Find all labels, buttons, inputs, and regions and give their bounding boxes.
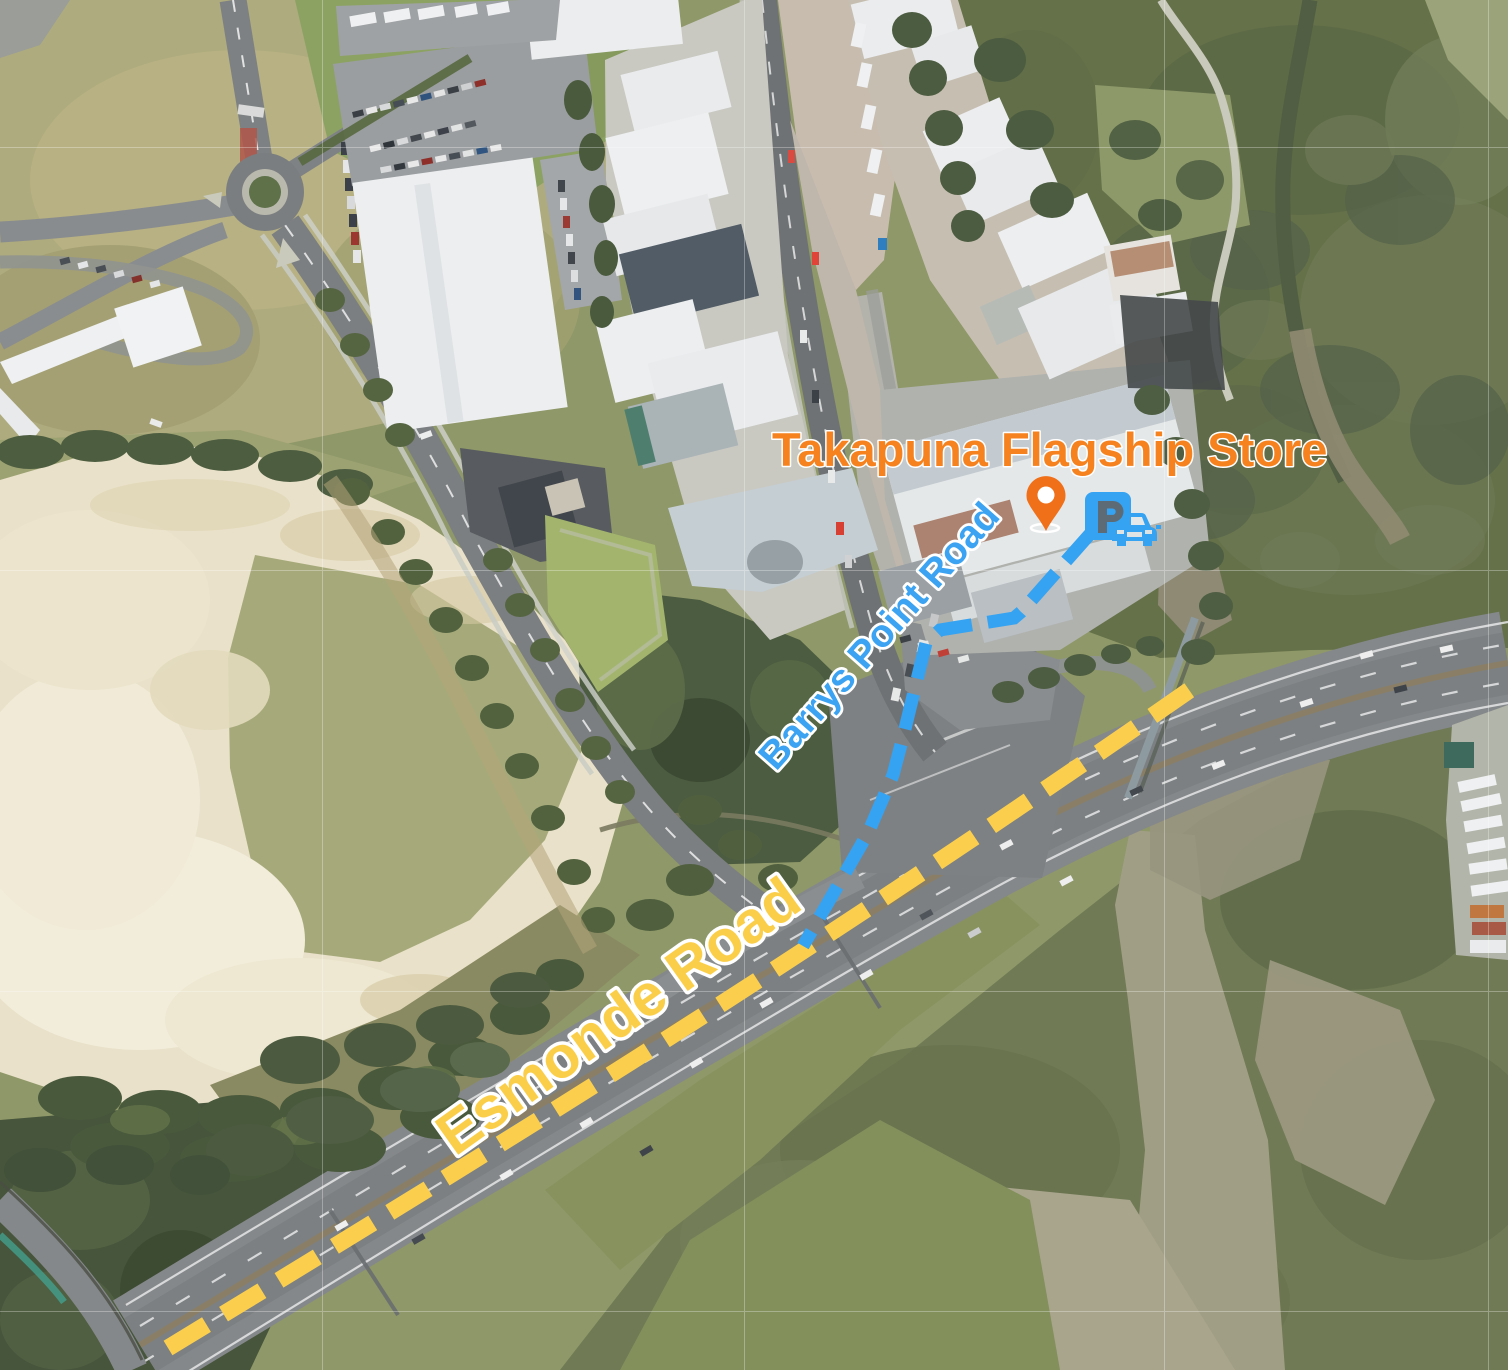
- svg-text:Takapuna Flagship Store: Takapuna Flagship Store: [772, 423, 1327, 476]
